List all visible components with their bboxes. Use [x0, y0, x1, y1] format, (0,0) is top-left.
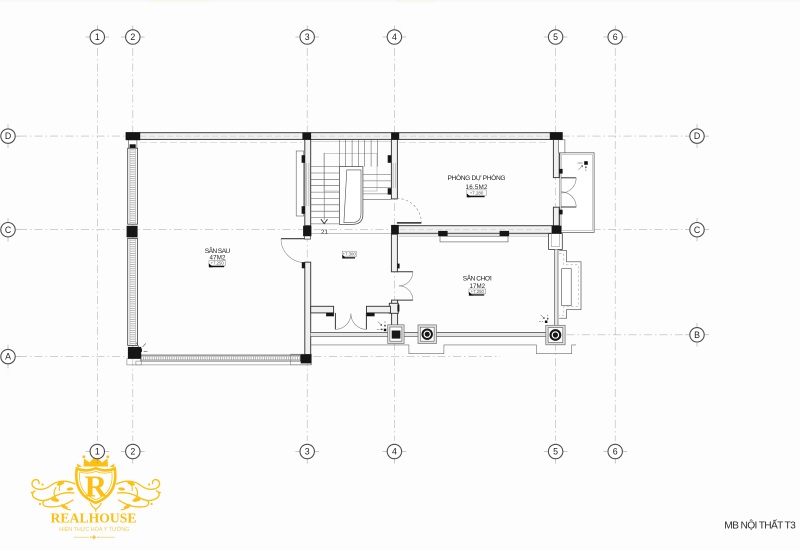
svg-text:C: C: [5, 225, 12, 235]
svg-text:R: R: [85, 469, 108, 504]
svg-text:5: 5: [553, 447, 558, 457]
svg-text:+7.300: +7.300: [343, 252, 357, 257]
svg-text:B: B: [694, 330, 700, 340]
svg-text:SÂN SAU: SÂN SAU: [205, 246, 231, 255]
svg-text:21: 21: [321, 229, 329, 236]
svg-text:6: 6: [613, 32, 618, 42]
svg-text:1: 1: [95, 447, 100, 457]
svg-text:1: 1: [95, 32, 100, 42]
svg-text:REALHOUSE: REALHOUSE: [51, 510, 137, 525]
svg-text:+7.280: +7.280: [470, 190, 484, 195]
svg-text:2: 2: [130, 32, 135, 42]
svg-text:4: 4: [392, 32, 397, 42]
svg-text:A: A: [5, 352, 11, 362]
svg-text:HIỆN THỰC HÓA Ý TƯỞNG: HIỆN THỰC HÓA Ý TƯỞNG: [59, 525, 129, 533]
svg-text:D: D: [5, 131, 11, 141]
svg-text:+7.250: +7.250: [471, 289, 485, 294]
svg-text:PHÒNG DỰ PHÒNG: PHÒNG DỰ PHÒNG: [448, 173, 506, 182]
svg-text:3: 3: [305, 32, 310, 42]
svg-text:5: 5: [553, 32, 558, 42]
svg-text:4: 4: [392, 447, 397, 457]
svg-text:SÂN CHƠI: SÂN CHƠI: [463, 274, 492, 283]
svg-text:+7.250: +7.250: [211, 261, 225, 266]
svg-text:D: D: [694, 131, 700, 141]
svg-text:2: 2: [130, 447, 135, 457]
svg-text:MB NỘI THẤT T3: MB NỘI THẤT T3: [724, 518, 796, 531]
svg-text:C: C: [694, 225, 701, 235]
svg-text:6: 6: [613, 447, 618, 457]
svg-text:3: 3: [305, 447, 310, 457]
